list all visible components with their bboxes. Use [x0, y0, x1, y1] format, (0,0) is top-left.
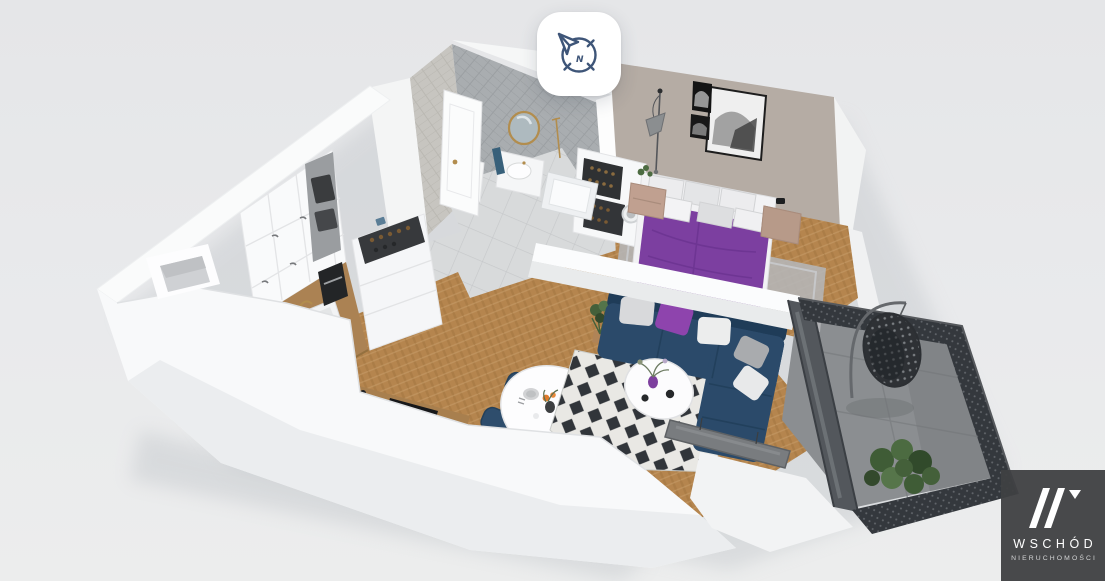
- alarm-clock: [776, 198, 785, 204]
- lamp-ball: [658, 89, 663, 94]
- flower-bud-2: [663, 359, 668, 364]
- coffee-table-vase: [648, 376, 658, 389]
- flower-bud: [637, 359, 642, 364]
- floorplan-viewer: N WSCHÓD NIERUCHOMOŚCI: [0, 0, 1105, 581]
- compass-button[interactable]: N: [537, 12, 621, 96]
- monogram-triangle: [1069, 490, 1081, 499]
- brand-name: WSCHÓD: [1009, 537, 1097, 551]
- entrance-door: [440, 90, 482, 216]
- vanity-faucet: [522, 161, 525, 164]
- door-panel: [440, 90, 482, 216]
- vanity-sink: [507, 163, 531, 179]
- lamp-base: [654, 170, 658, 174]
- coffee-table-cup-2: [641, 394, 648, 401]
- brand-subtitle: NIERUCHOMOŚCI: [1009, 555, 1097, 562]
- compass-north-icon: N: [553, 28, 605, 80]
- sofa-pillow-white: [697, 317, 732, 346]
- coffee-table-cup: [666, 390, 674, 398]
- microwave-door: [314, 208, 338, 232]
- compass-north-letter: N: [576, 55, 584, 65]
- door-handle: [453, 160, 458, 165]
- watermark-logo: WSCHÓD NIERUCHOMOŚCI: [1001, 470, 1105, 581]
- w-monogram-icon: [1021, 484, 1085, 528]
- egg-chair-shadow: [846, 398, 914, 418]
